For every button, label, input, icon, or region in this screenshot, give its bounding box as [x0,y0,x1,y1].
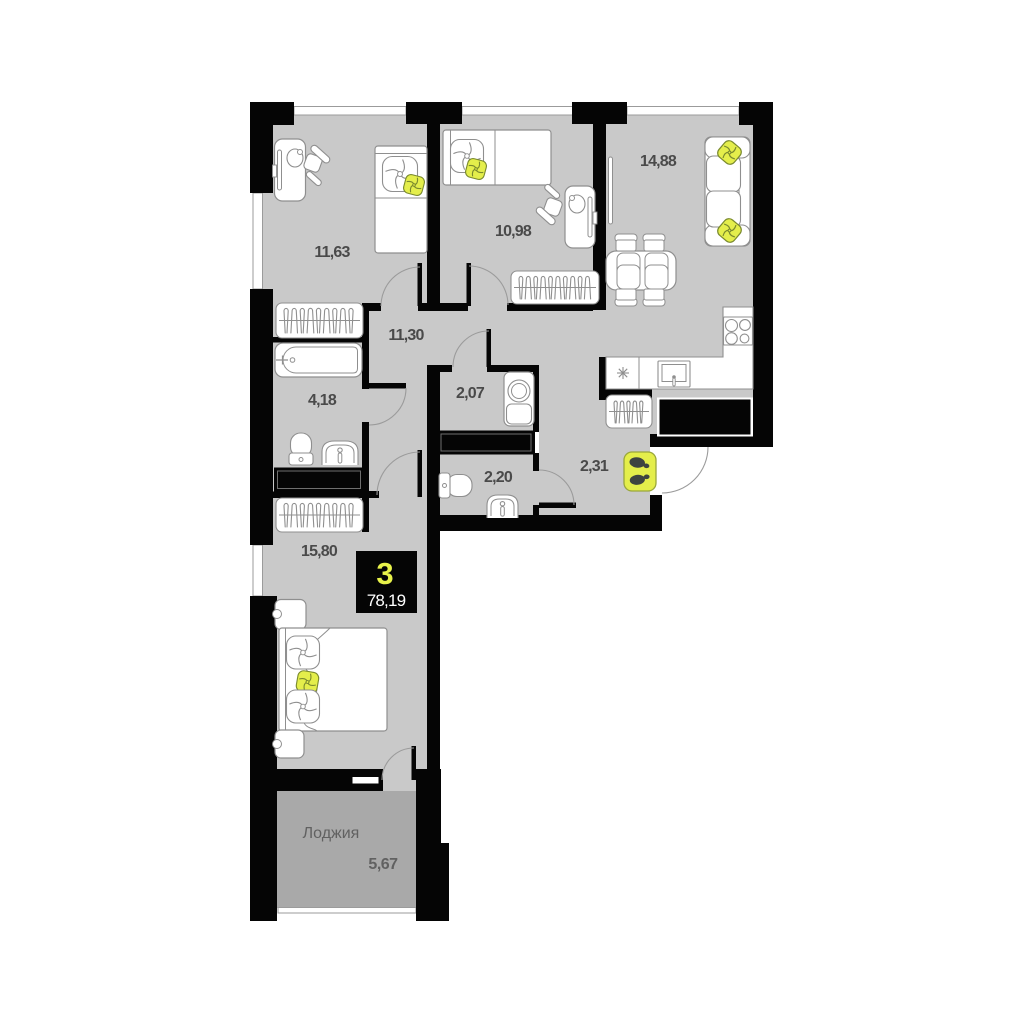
svg-text:78,19: 78,19 [367,591,406,610]
svg-text:4,18: 4,18 [308,392,337,409]
svg-text:3: 3 [376,556,393,591]
svg-text:2,07: 2,07 [456,385,485,402]
svg-text:5,67: 5,67 [368,856,398,873]
svg-text:14,88: 14,88 [640,153,677,170]
svg-text:11,30: 11,30 [388,327,424,344]
svg-text:10,98: 10,98 [495,223,532,240]
svg-text:Лоджия: Лоджия [303,825,360,842]
svg-text:11,63: 11,63 [314,244,350,261]
svg-text:2,20: 2,20 [484,469,513,486]
svg-text:15,80: 15,80 [301,543,338,560]
svg-text:2,31: 2,31 [580,458,609,475]
